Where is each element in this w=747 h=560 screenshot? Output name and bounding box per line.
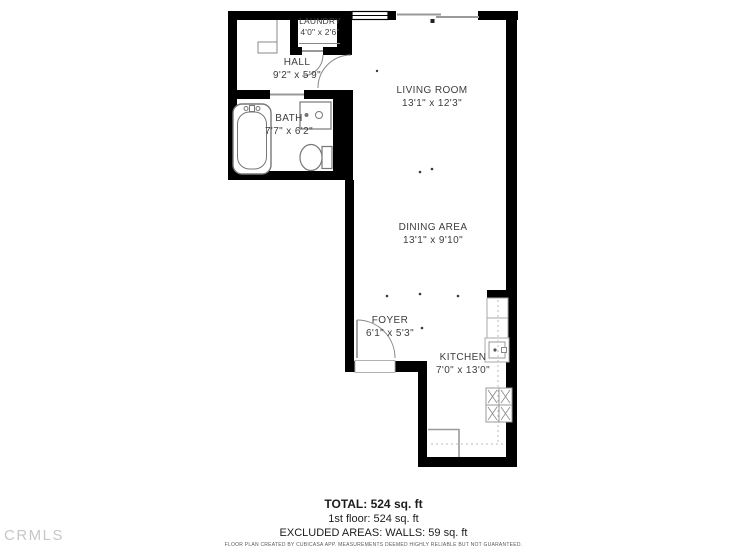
room-name: FOYER	[366, 314, 414, 327]
room-dims: 13'1" x 9'10"	[399, 234, 468, 247]
walls	[228, 11, 518, 467]
room-label-kitchen: KITCHEN 7'0" x 13'0"	[436, 351, 490, 377]
room-dims: 13'1" x 12'3"	[396, 97, 467, 110]
room-label-hall: HALL 9'2" x 5'9"	[273, 56, 321, 82]
room-name: HALL	[273, 56, 321, 69]
toilet-icon	[300, 145, 332, 171]
window-icon	[352, 12, 388, 20]
disclaimer-text: FLOOR PLAN CREATED BY CUBICASA APP. MEAS…	[0, 542, 747, 548]
room-label-foyer: FOYER 6'1" x 5'3"	[366, 314, 414, 340]
room-dims: 7'7" x 6'2"	[265, 125, 313, 138]
crmls-watermark: CRMLS	[4, 527, 64, 544]
total-area: TOTAL: 524 sq. ft	[0, 497, 747, 512]
room-label-bath: BATH 7'7" x 6'2"	[265, 112, 313, 138]
room-dims: 9'2" x 5'9"	[273, 69, 321, 82]
hall-closet	[258, 20, 277, 53]
room-label-living-room: LIVING ROOM 13'1" x 12'3"	[396, 84, 467, 110]
first-floor-area: 1st floor: 524 sq. ft	[0, 512, 747, 526]
floor-plan-drawing	[0, 0, 747, 560]
room-label-laundry: LAUNDRY 4'0" x 2'6"	[299, 16, 341, 38]
floor-plan-page: LAUNDRY 4'0" x 2'6" HALL 9'2" x 5'9" BAT…	[0, 0, 747, 560]
stove-icon	[486, 388, 512, 422]
room-dims: 7'0" x 13'0"	[436, 364, 490, 377]
sliding-door-icon	[397, 15, 479, 24]
excluded-area: EXCLUDED AREAS: WALLS: 59 sq. ft	[0, 526, 747, 540]
kitchen-base-counter	[428, 430, 459, 458]
room-name: DINING AREA	[399, 221, 468, 234]
room-dims: 4'0" x 2'6"	[299, 27, 341, 38]
room-name: LAUNDRY	[299, 16, 341, 27]
room-name: BATH	[265, 112, 313, 125]
room-name: LIVING ROOM	[396, 84, 467, 97]
room-label-dining-area: DINING AREA 13'1" x 9'10"	[399, 221, 468, 247]
room-name: KITCHEN	[436, 351, 490, 364]
room-dims: 6'1" x 5'3"	[366, 327, 414, 340]
area-summary: TOTAL: 524 sq. ft 1st floor: 524 sq. ft …	[0, 497, 747, 540]
